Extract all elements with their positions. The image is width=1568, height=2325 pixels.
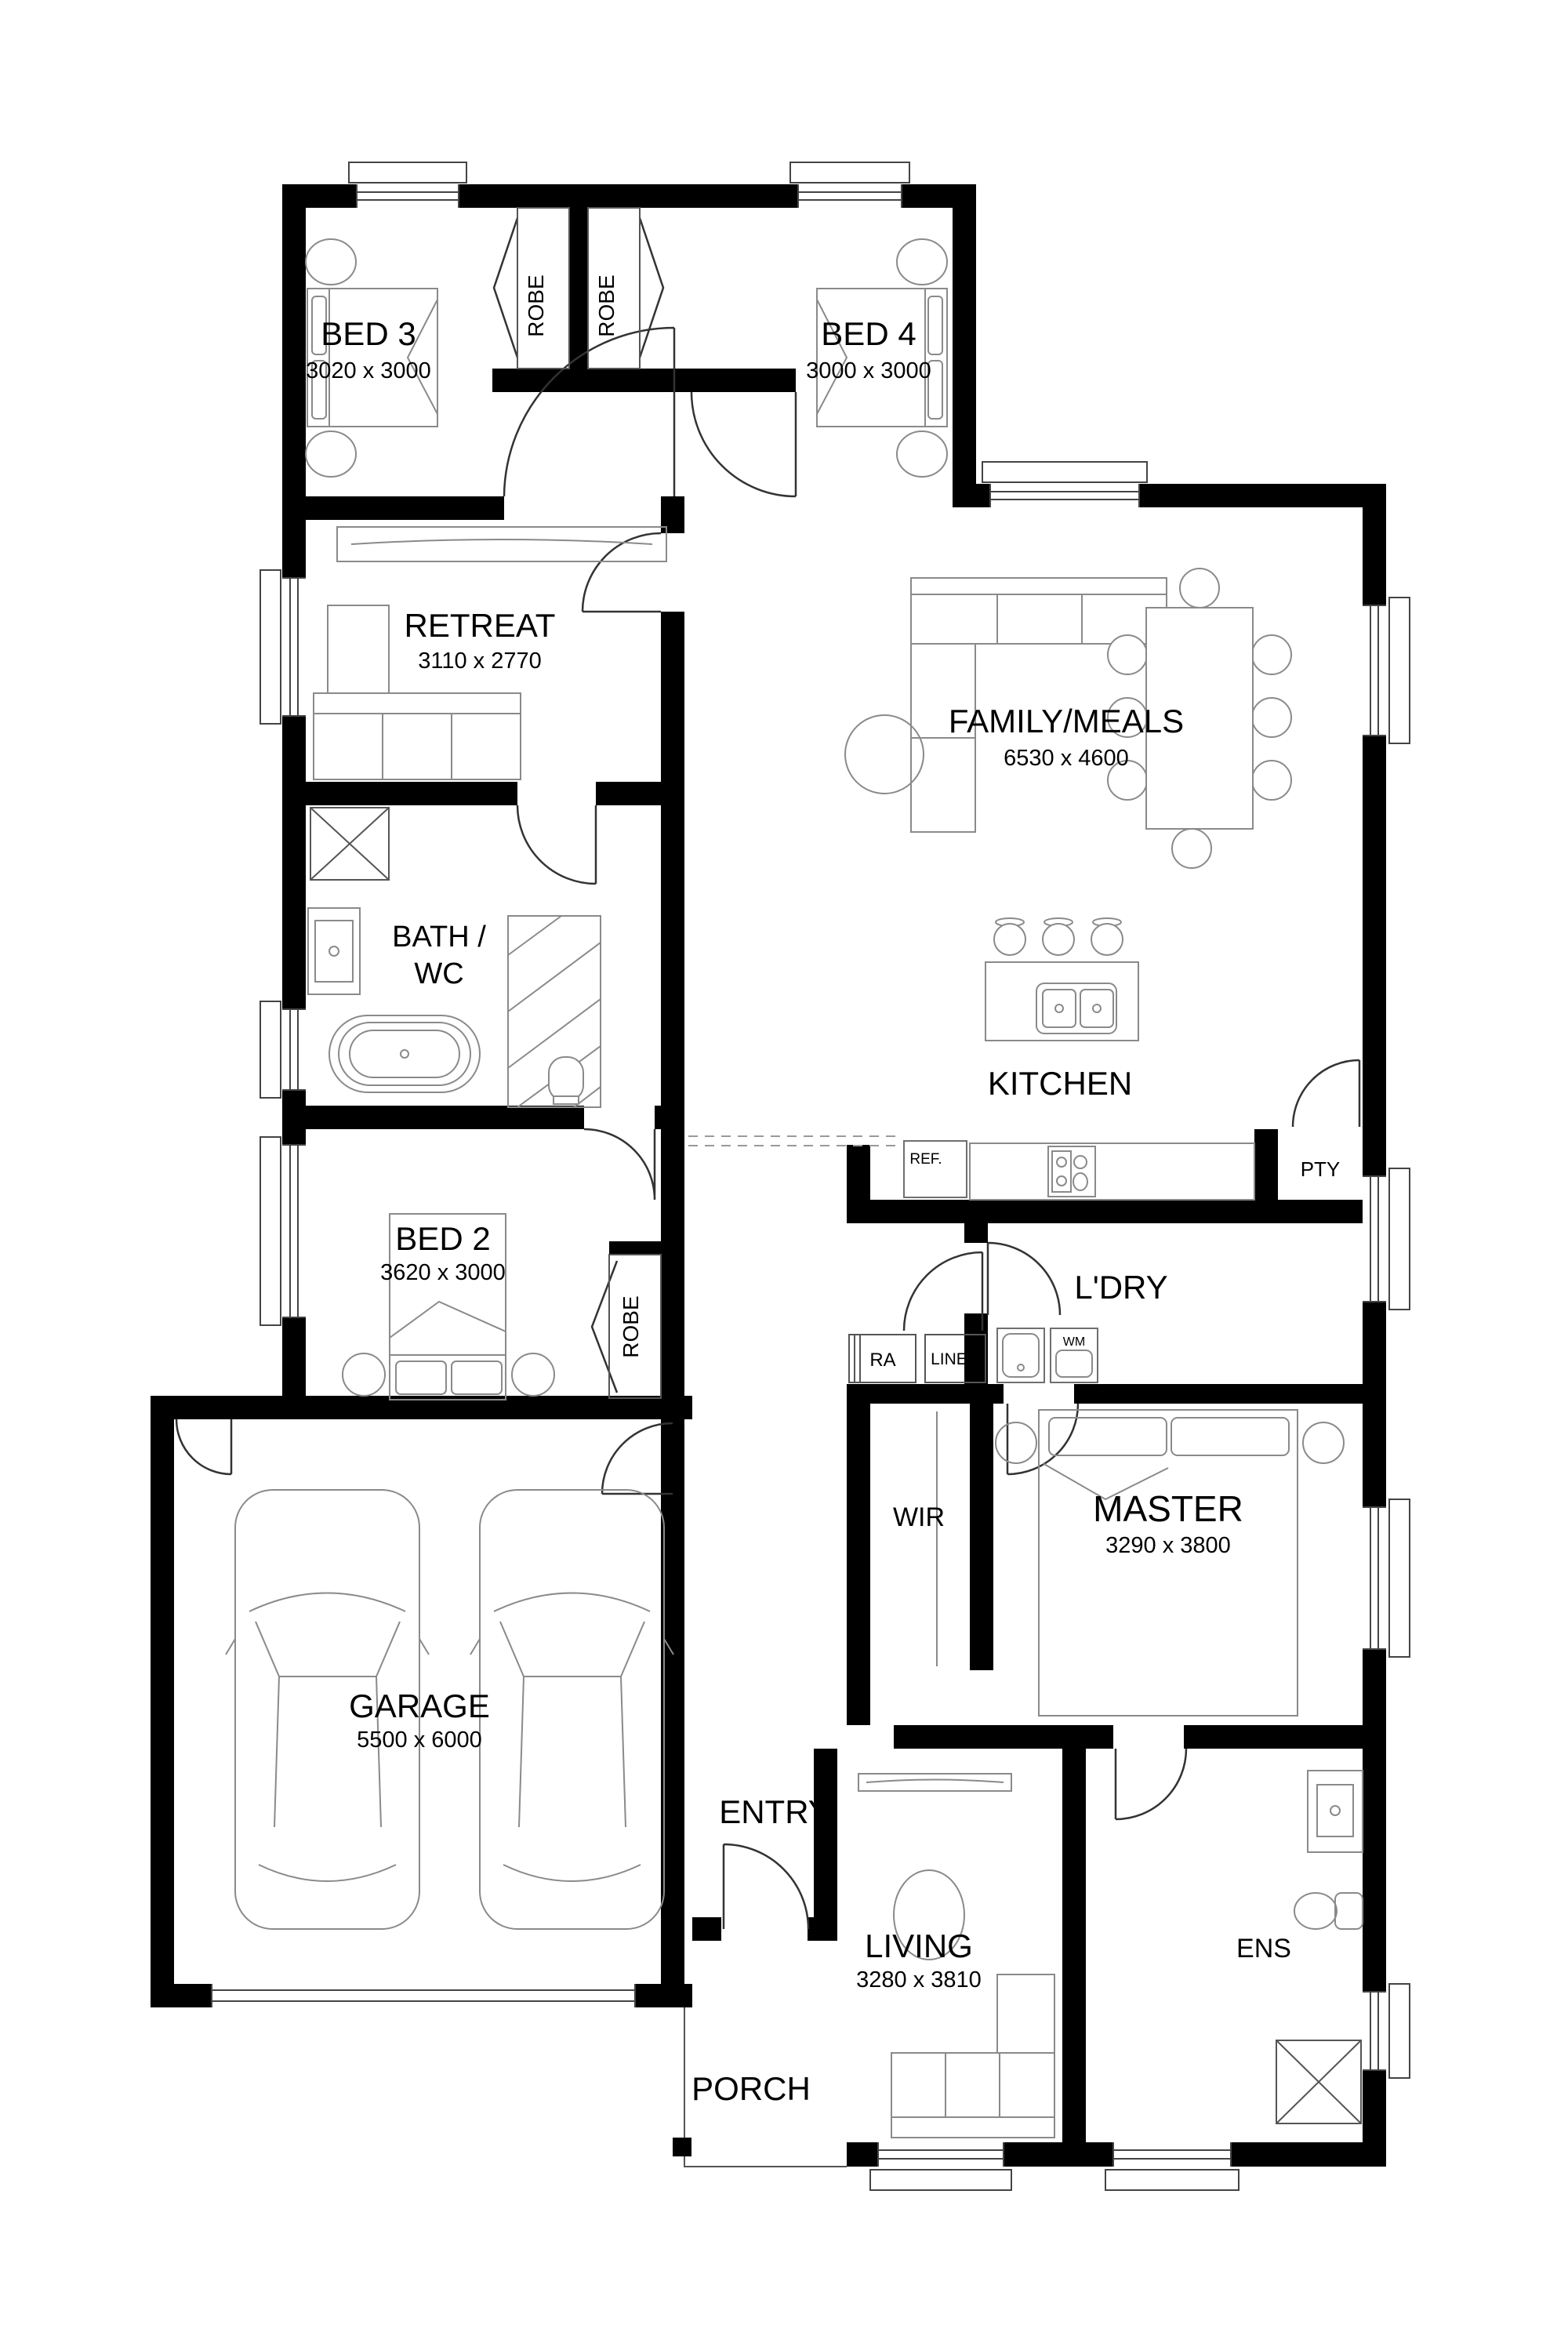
retreat-door xyxy=(583,533,661,612)
pantry-door xyxy=(1293,1060,1359,1127)
label-pantry: PTY xyxy=(1301,1157,1341,1181)
bath-door xyxy=(517,805,596,884)
label-master: MASTER xyxy=(1093,1488,1243,1529)
label-master-dims: 3290 x 3800 xyxy=(1105,1533,1231,1558)
kitchen-bench xyxy=(904,1141,1254,1200)
label-ens: ENS xyxy=(1236,1934,1291,1964)
ens-door xyxy=(1116,1749,1186,1819)
bed2-door xyxy=(584,1129,655,1200)
opening-dashed-line xyxy=(688,1136,902,1146)
bed2-robe-bifold-door xyxy=(592,1261,617,1393)
label-garage-dims: 5500 x 6000 xyxy=(357,1727,482,1753)
label-family-dims: 6530 x 4600 xyxy=(1004,746,1129,771)
kitchen-island xyxy=(985,918,1138,1041)
shower xyxy=(508,916,601,1107)
label-living-dims: 3280 x 3810 xyxy=(856,1967,982,1993)
linen-cupboard-x xyxy=(310,808,389,880)
label-washer: WM xyxy=(1063,1335,1085,1349)
walls xyxy=(151,184,1386,2167)
label-ra: RA xyxy=(869,1350,895,1371)
label-bed2: BED 2 xyxy=(395,1220,490,1257)
label-linen: LINEN xyxy=(931,1350,979,1368)
ldry-door xyxy=(988,1243,1060,1315)
label-bed4-dims: 3000 x 3000 xyxy=(806,358,931,383)
label-robe1: ROBE xyxy=(524,274,548,336)
garage-side-door xyxy=(176,1419,231,1474)
dresser xyxy=(337,527,666,561)
robe2-bifold-door xyxy=(640,218,663,358)
label-porch: PORCH xyxy=(691,2070,811,2107)
label-retreat: RETREAT xyxy=(405,607,556,644)
front-door xyxy=(724,1844,808,1929)
label-ldry: L'DRY xyxy=(1074,1269,1167,1306)
master-bed xyxy=(996,1410,1344,1716)
label-living: LIVING xyxy=(865,1927,973,1964)
fridge-box xyxy=(904,1141,967,1197)
label-bed2-dims: 3620 x 3000 xyxy=(380,1260,506,1285)
floor-plan: BED 3 3020 x 3000 ROBE ROBE BED 4 3000 x… xyxy=(0,0,1568,2325)
hall-wing-door xyxy=(504,328,674,496)
label-retreat-dims: 3110 x 2770 xyxy=(418,648,542,674)
label-bed3-dims: 3020 x 3000 xyxy=(306,358,431,383)
label-fridge: REF. xyxy=(909,1151,942,1168)
label-garage: GARAGE xyxy=(349,1687,490,1724)
label-bed4: BED 4 xyxy=(821,315,916,352)
robe1-bifold-door xyxy=(494,218,517,358)
label-family: FAMILY/MEALS xyxy=(949,703,1184,739)
bed4-door xyxy=(691,392,796,496)
car-right xyxy=(470,1490,673,1929)
label-bed2-robe: ROBE xyxy=(619,1295,643,1357)
label-bath-line2: WC xyxy=(414,957,463,990)
label-bath-line1: BATH / xyxy=(392,921,486,954)
label-entry: ENTRY xyxy=(719,1793,830,1830)
windows xyxy=(212,162,1410,2190)
label-wir: WIR xyxy=(893,1502,945,1532)
label-kitchen: KITCHEN xyxy=(988,1065,1132,1102)
ens-shower xyxy=(1276,2040,1361,2123)
label-bed3: BED 3 xyxy=(321,315,416,352)
label-robe2: ROBE xyxy=(594,274,619,336)
